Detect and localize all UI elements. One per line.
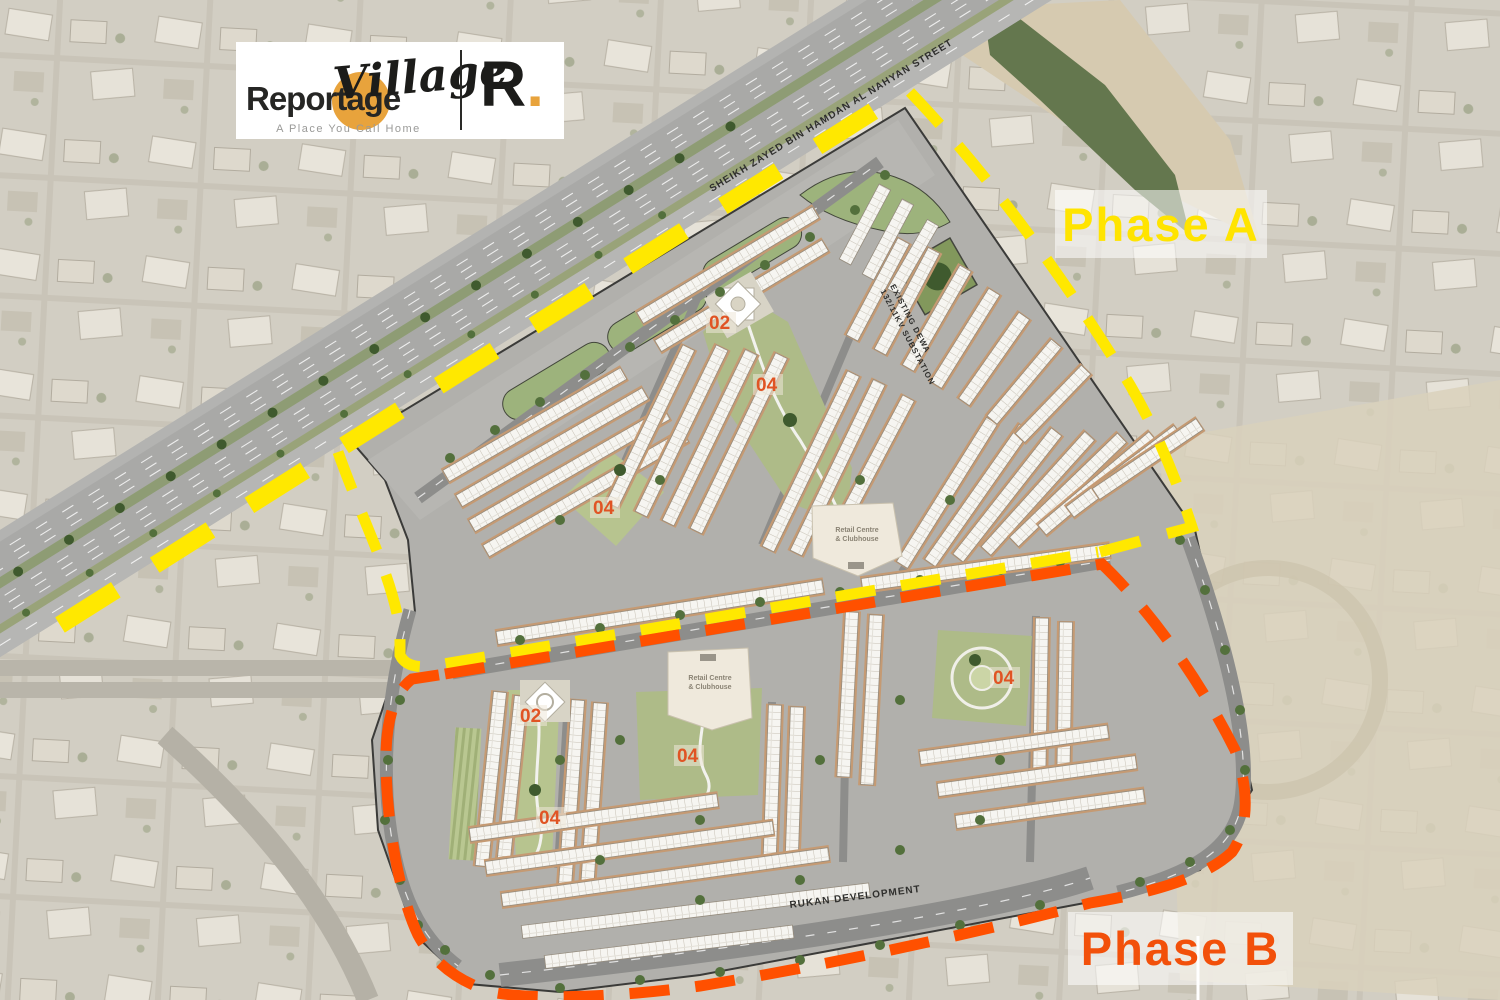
plot-b-park-mid: 04 (677, 746, 699, 767)
retail-b-label-1: Retail Centre (688, 675, 731, 682)
plot-a-park-left: 04 (593, 498, 615, 519)
plot-a-mosque: 02 (709, 313, 730, 334)
logo-monogram-letter: R (480, 48, 526, 120)
retail-b-label-2: & Clubhouse (688, 684, 731, 691)
logo-divider (460, 50, 462, 130)
retail-a-label-1: Retail Centre (835, 527, 878, 534)
retail-centre-b: Retail Centre & Clubhouse (668, 648, 752, 730)
phase-a-label: Phase A (1055, 190, 1267, 258)
plot-b-mosque: 02 (520, 706, 541, 727)
masterplan-image: Retail Centre & Clubhouse Retail Centre … (0, 0, 1500, 1000)
plot-b-park-right: 04 (993, 668, 1015, 689)
plot-b-park-left: 04 (539, 808, 561, 829)
phase-b-label: Phase B (1068, 912, 1293, 985)
site-plan-svg: Retail Centre & Clubhouse Retail Centre … (0, 0, 1500, 1000)
plot-a-park-main: 04 (756, 375, 778, 396)
logo-tagline: A Place You Call Home (236, 123, 461, 135)
logo-monogram: R. (480, 52, 544, 116)
logo-card: Reportage Village A Place You Call Home … (236, 42, 564, 139)
logo-monogram-dot: . (526, 48, 544, 120)
retail-a-label-2: & Clubhouse (835, 536, 878, 543)
